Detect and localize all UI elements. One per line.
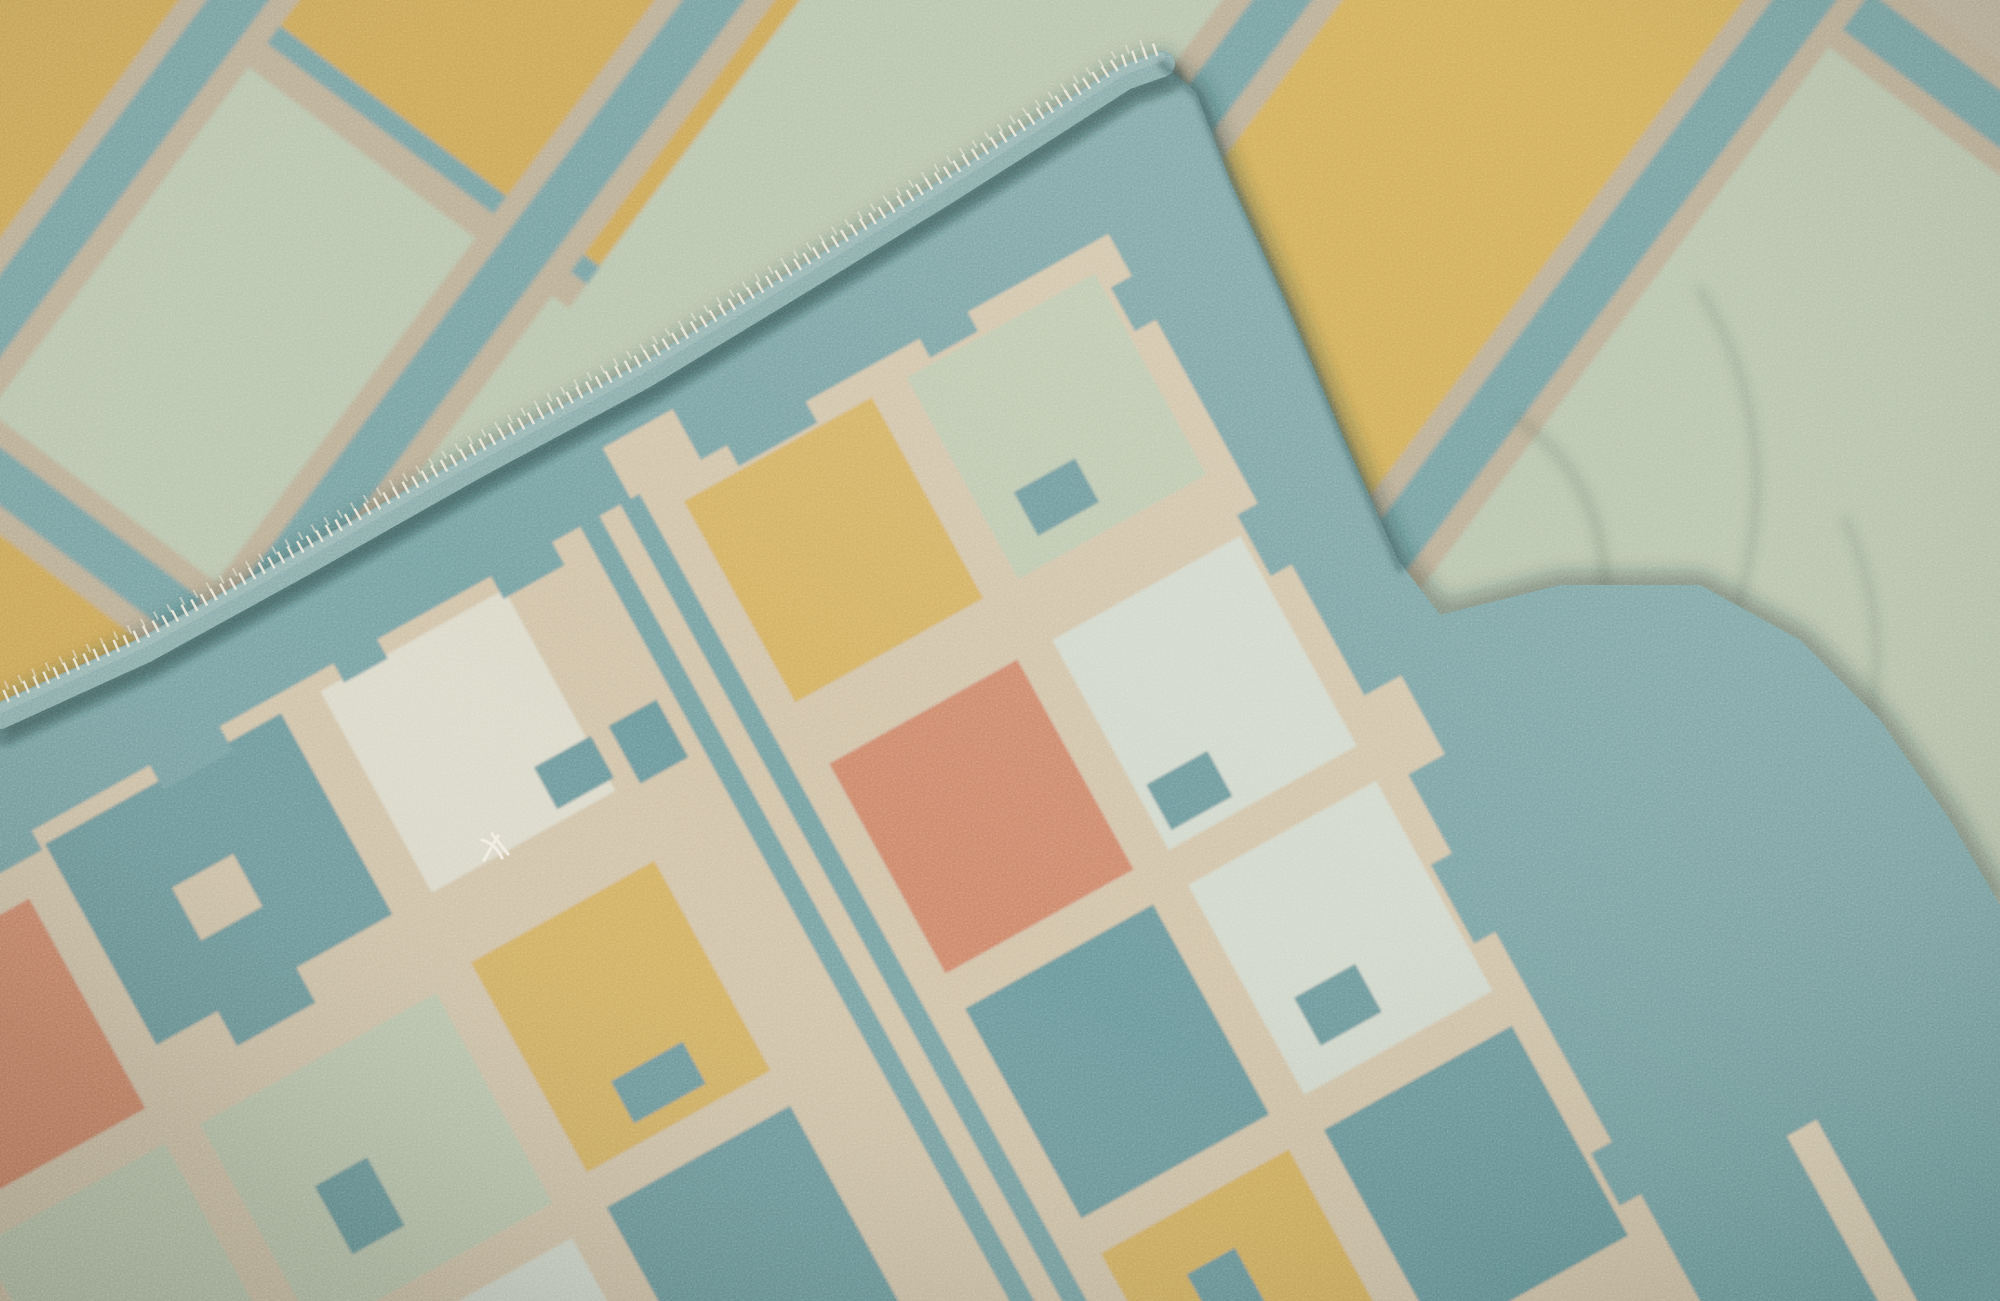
fabric-grain-texture	[0, 0, 2000, 1301]
rug-scene	[0, 0, 2000, 1301]
photo-of-folded-rug	[0, 0, 2000, 1301]
